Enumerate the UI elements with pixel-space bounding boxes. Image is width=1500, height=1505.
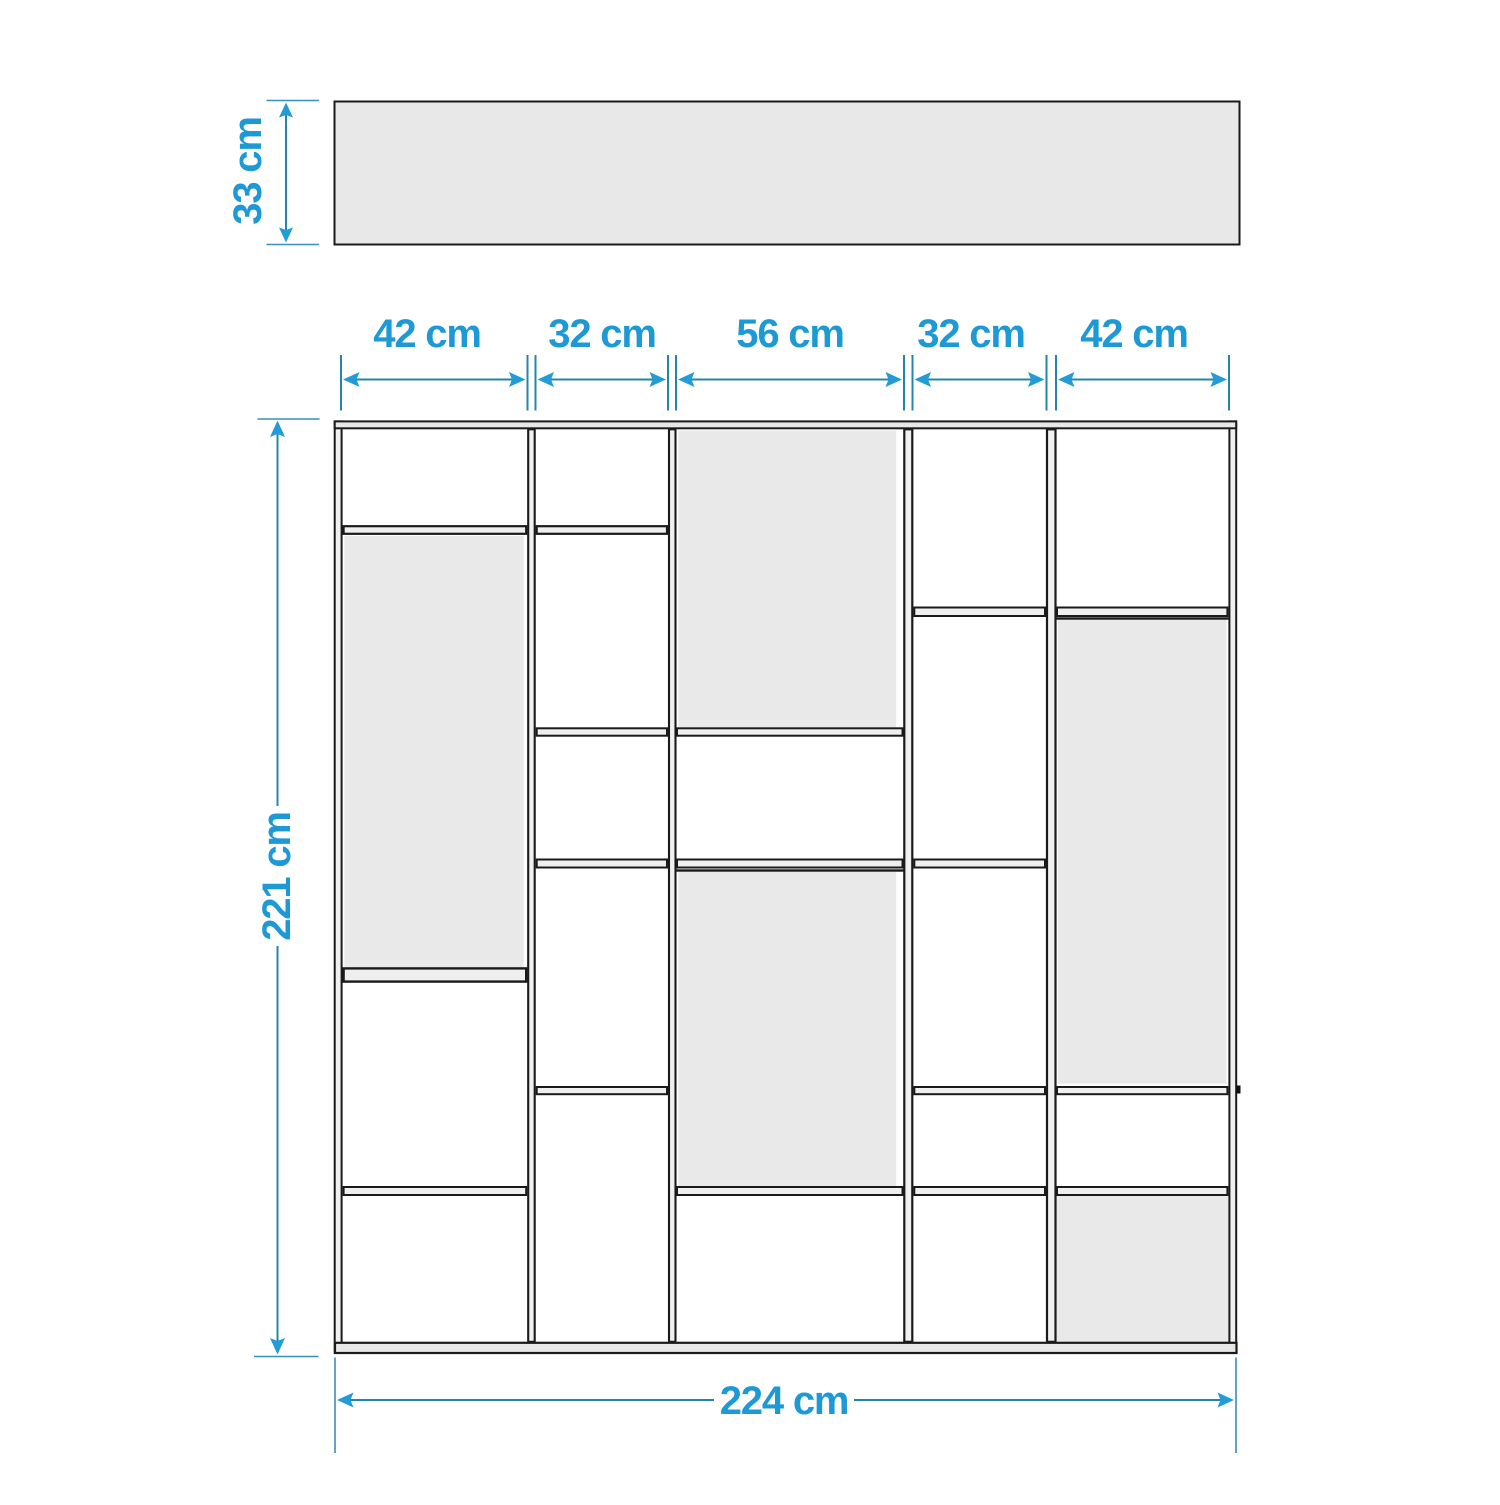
svg-text:33 cm: 33 cm <box>226 117 270 224</box>
svg-text:32 cm: 32 cm <box>548 312 655 356</box>
svg-text:56 cm: 56 cm <box>736 312 843 356</box>
svg-text:224 cm: 224 cm <box>720 1379 848 1423</box>
svg-text:42 cm: 42 cm <box>373 312 480 356</box>
svg-text:42 cm: 42 cm <box>1080 312 1187 356</box>
svg-text:32 cm: 32 cm <box>917 312 1024 356</box>
svg-text:221 cm: 221 cm <box>255 812 299 940</box>
